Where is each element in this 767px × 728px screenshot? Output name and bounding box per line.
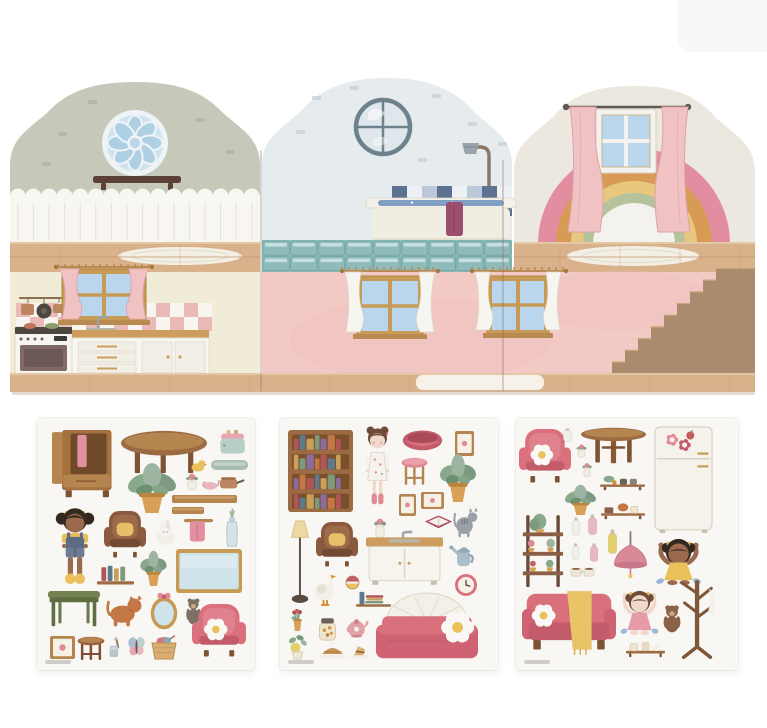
sticker-sheet-1 — [37, 418, 255, 670]
sheet-code-mark — [45, 660, 71, 664]
doll-girl-dress — [360, 426, 395, 506]
trifold-dollhouse-backdrop — [0, 0, 767, 400]
plant-in-basket — [563, 486, 598, 515]
dining-table — [581, 427, 646, 464]
notice-board — [176, 549, 242, 593]
potted-plant-small — [139, 552, 168, 586]
bedroom-window — [596, 109, 656, 173]
dollhouse-sticker-playset-photo — [0, 0, 767, 728]
picture-frame — [455, 431, 474, 456]
sofa — [522, 587, 616, 655]
cat-orange — [107, 595, 144, 627]
stove — [15, 323, 72, 374]
bookcase — [288, 430, 353, 512]
picture-frame — [50, 636, 75, 659]
potted-plant-large — [438, 456, 478, 502]
ladder-plant-shelf — [522, 509, 564, 587]
kitchen-cabinets — [72, 330, 209, 375]
shelf-with-jars — [626, 639, 665, 658]
towel-on-rail — [184, 519, 213, 542]
lemon-plant — [285, 634, 310, 659]
bathtub — [366, 198, 516, 245]
bottom-floor — [10, 373, 755, 392]
sticker-sheet-2 — [280, 418, 498, 670]
teddy-bear-brown — [661, 604, 683, 633]
bed — [376, 591, 478, 661]
cooking-pot — [220, 474, 244, 490]
rosette-window — [102, 110, 168, 176]
potted-herb — [184, 473, 200, 491]
pet-basket — [402, 429, 443, 451]
toy-mouse — [201, 480, 219, 490]
stool-brown — [77, 636, 105, 661]
bottle-small-pink — [589, 543, 599, 562]
wall-shelf-short — [172, 507, 204, 514]
butterfly — [127, 636, 146, 658]
armchair-pink — [192, 604, 246, 657]
potted-plant-large — [125, 465, 179, 513]
bottle-small-white — [571, 543, 580, 560]
picture-frame-wide — [421, 492, 444, 509]
pink-room-window-2 — [470, 269, 568, 338]
pink-room-window-1 — [340, 269, 440, 339]
toaster — [219, 430, 246, 455]
floor-lamp — [288, 521, 312, 603]
plant-cup — [575, 444, 588, 458]
shelf-with-decor — [601, 502, 645, 520]
vase-white — [562, 428, 573, 442]
oval-mirror — [149, 592, 179, 630]
doll-girl-pink — [618, 587, 661, 636]
doll-girl-overalls — [55, 508, 95, 584]
bunny — [154, 520, 177, 545]
wall-shelf-long — [172, 495, 237, 503]
open-book — [424, 514, 453, 529]
sheet-code-mark — [524, 660, 550, 664]
potted-flowers — [288, 609, 307, 631]
green-desk — [48, 591, 100, 627]
bottom-rug — [416, 375, 544, 390]
teapot — [346, 616, 371, 638]
bottle-white — [571, 517, 581, 536]
sink-cabinet — [366, 532, 443, 586]
tea-cups — [571, 565, 596, 578]
pendant-lamp — [613, 532, 648, 582]
sheet-code-mark — [288, 660, 314, 664]
toy-ball — [346, 576, 359, 589]
wingback-chair-brown — [104, 511, 146, 558]
picture-frame-small — [399, 494, 416, 516]
open-wardrobe — [52, 430, 114, 500]
wingback-chair-brown — [316, 522, 358, 567]
flower-cup — [581, 462, 593, 478]
flower-vase — [221, 506, 243, 548]
porthole-window — [356, 100, 410, 154]
stool-pink — [401, 457, 428, 486]
pie — [319, 641, 346, 659]
serving-tray — [211, 460, 248, 470]
sticker-sheet-3 — [516, 418, 738, 670]
cup-with-brush — [108, 637, 122, 658]
book-shelf — [97, 564, 134, 586]
cake-slice — [349, 644, 369, 659]
watering-can — [449, 544, 476, 568]
storage-jar — [317, 617, 338, 641]
rubber-duck — [191, 460, 206, 472]
goose — [314, 572, 339, 606]
fridge — [655, 427, 712, 533]
knitting-basket — [149, 634, 179, 659]
cat-gray — [454, 507, 479, 538]
bottle-pink — [587, 514, 598, 535]
shelf-plant-jars — [600, 474, 645, 491]
